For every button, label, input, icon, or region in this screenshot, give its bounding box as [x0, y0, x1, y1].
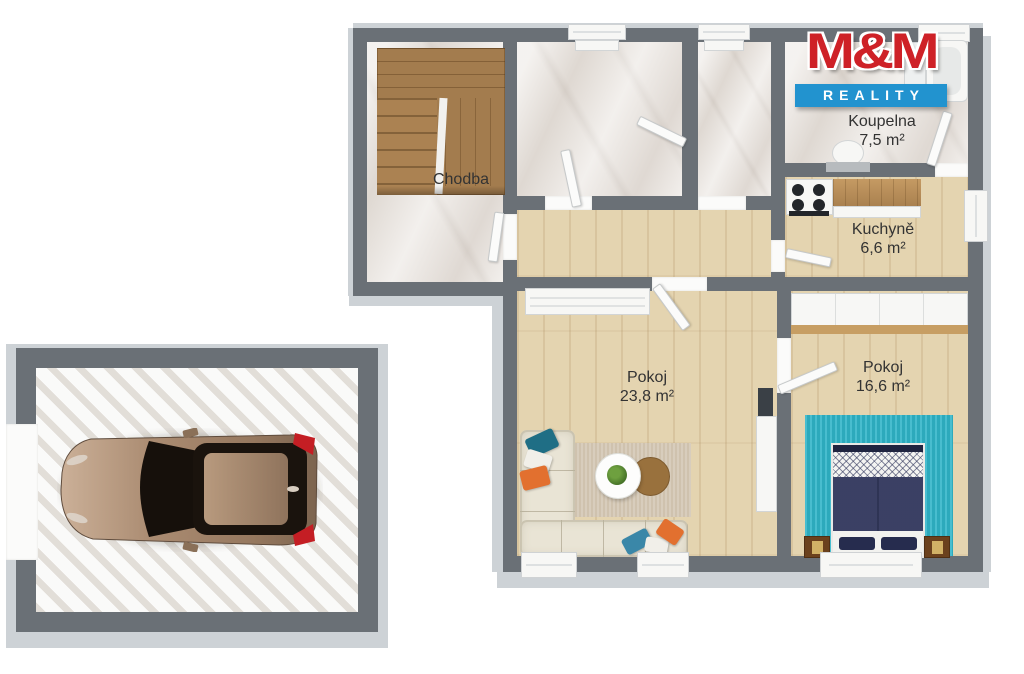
kitchen-cabinet-front — [833, 206, 921, 218]
radiator-cabinet — [525, 288, 650, 315]
bed-pillow-left — [839, 537, 875, 550]
wall-rooms-bottom-2 — [592, 196, 682, 210]
wardrobe — [791, 293, 968, 327]
window-bedroom — [820, 552, 922, 578]
wall-rooms-bottom-3 — [746, 196, 771, 210]
burner — [792, 184, 804, 196]
room-area: 16,6 m² — [856, 378, 910, 395]
room-name: Pokoj — [627, 369, 667, 386]
logo-tagline: REALITY — [795, 84, 947, 107]
wall-bedroom-divider-lower — [777, 393, 791, 572]
wall-edge-living-left — [492, 296, 503, 572]
stair-landing — [377, 48, 505, 98]
room-name: Chodba — [433, 171, 489, 188]
burner — [792, 199, 804, 211]
room-area: 7,5 m² — [859, 132, 904, 149]
room-label-chodba: Chodba — [411, 170, 511, 189]
bed-blanket-fold — [833, 452, 923, 477]
stove — [786, 179, 833, 215]
bed-headboard — [833, 445, 923, 452]
plant — [607, 465, 627, 485]
bed-duvet — [833, 477, 923, 531]
floor-plan-canvas: Chodba Koupelna 7,5 m² Kuchyně 6,6 m² — [0, 0, 1024, 674]
room-name: Kuchyně — [852, 221, 914, 238]
bed-pillow-right — [881, 537, 917, 550]
wall-hall-left — [353, 28, 367, 296]
wall-edge-right — [983, 36, 991, 572]
wall-rooms-divider — [682, 28, 698, 210]
wall-right — [968, 28, 983, 572]
toilet-tank — [826, 162, 870, 172]
nightstand-drawer — [932, 541, 943, 554]
oven-handle — [789, 211, 829, 216]
door-opening-room-b — [698, 196, 746, 210]
wall-rooms-bottom-1 — [517, 196, 545, 210]
window-living-2 — [637, 552, 689, 578]
wall-bedroom-divider-upper — [777, 291, 791, 338]
garage-door-opening — [6, 424, 38, 560]
room-area: 6,6 m² — [860, 240, 905, 257]
wall-spine — [503, 28, 517, 572]
room-label-koupelna: Koupelna 7,5 m² — [822, 112, 942, 150]
burner — [813, 184, 825, 196]
room-a-floor — [517, 42, 682, 196]
door-opening-room-a — [545, 196, 592, 210]
hallway-floor — [517, 210, 771, 277]
nightstand-right — [924, 536, 950, 558]
door-opening-bathroom — [935, 163, 968, 177]
bed — [833, 445, 923, 556]
agency-logo: M&M REALITY — [795, 22, 947, 107]
sideboard — [756, 416, 777, 512]
room-label-pokoj-loznice: Pokoj 16,6 m² — [823, 358, 943, 396]
logo-brand-text: M&M — [781, 22, 960, 82]
wall-hall-bottom — [353, 282, 517, 296]
room-label-pokoj-obyvaci: Pokoj 23,8 m² — [587, 368, 707, 406]
room-b-floor — [698, 42, 771, 196]
room-name: Pokoj — [863, 359, 903, 376]
door-opening-kitchen — [771, 240, 785, 272]
window-sill-room-b — [704, 40, 744, 51]
car-top-view — [57, 428, 323, 552]
tv — [758, 388, 773, 416]
wardrobe-wood-trim — [791, 325, 968, 334]
kitchen-counter — [833, 179, 921, 208]
window-room-b — [698, 24, 750, 40]
room-area: 23,8 m² — [620, 388, 674, 405]
room-name: Koupelna — [848, 113, 916, 130]
room-label-kuchyne: Kuchyně 6,6 m² — [823, 220, 943, 258]
wall-mid-right — [707, 277, 983, 291]
burner — [813, 199, 825, 211]
window-living-1 — [521, 552, 577, 578]
door-opening-hall — [503, 214, 517, 260]
window-room-a — [568, 24, 626, 40]
window-sill-room-a — [575, 40, 619, 51]
window-kitchen-right — [964, 190, 988, 242]
